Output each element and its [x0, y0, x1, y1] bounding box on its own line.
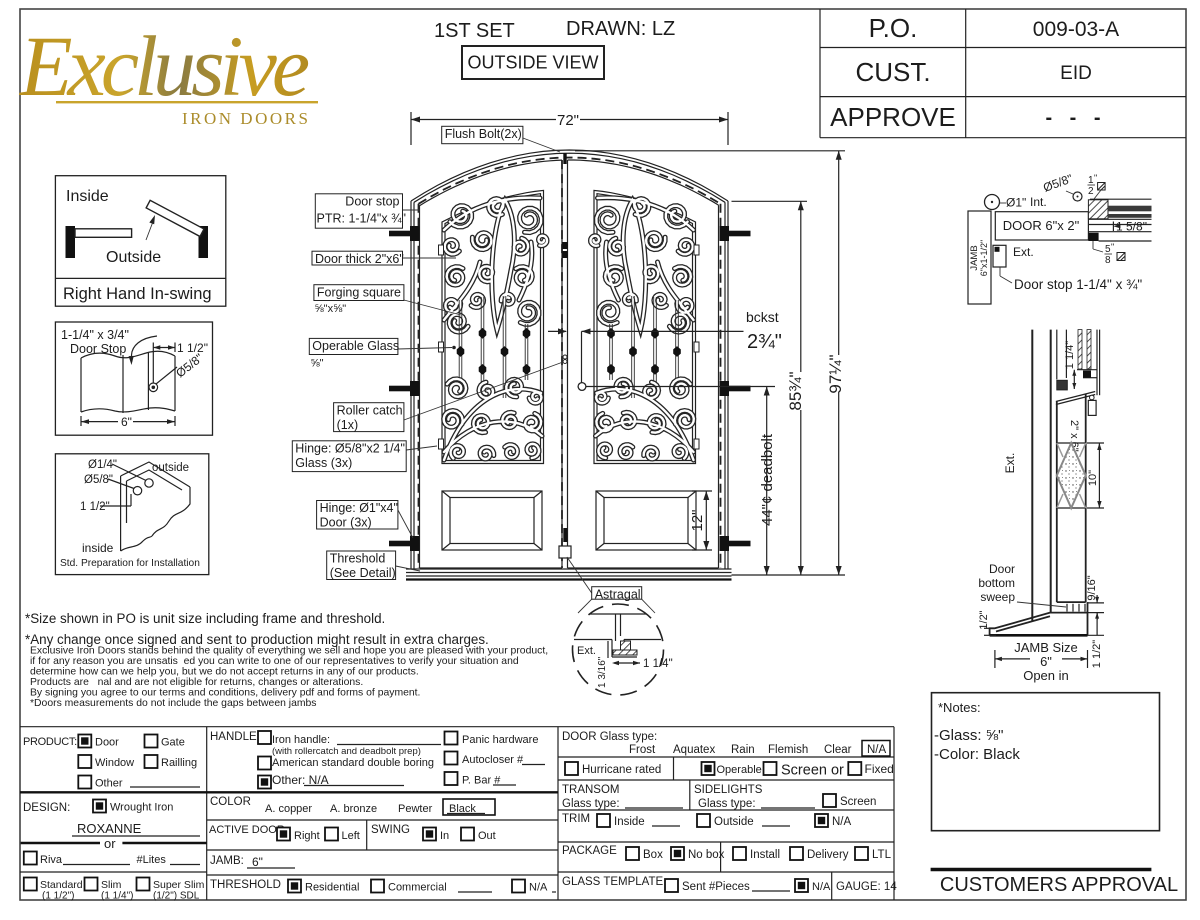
svg-text:In: In — [440, 830, 449, 842]
svg-text:JAMB:: JAMB: — [210, 855, 244, 867]
svg-text:Panic hardware: Panic hardware — [462, 734, 538, 746]
svg-text:(1x): (1x) — [337, 418, 359, 432]
svg-text:10": 10" — [1087, 470, 1099, 486]
svg-text:DESIGN:: DESIGN: — [23, 802, 70, 814]
svg-text:(with rollercatch and deadbolt: (with rollercatch and deadbolt prep) — [272, 746, 421, 757]
svg-text:N/A: N/A — [867, 744, 887, 756]
svg-text:2: 2 — [1088, 186, 1094, 197]
svg-text:(1 1/2"): (1 1/2") — [42, 891, 74, 902]
svg-text:CUSTOMERS APPROVAL: CUSTOMERS APPROVAL — [940, 874, 1178, 896]
svg-text:A. copper: A. copper — [265, 803, 312, 815]
svg-text:Glass (3x): Glass (3x) — [295, 456, 352, 470]
svg-text:Exclusive: Exclusive — [18, 18, 310, 114]
svg-text:TRIM: TRIM — [562, 813, 590, 825]
svg-text:9/16": 9/16" — [1086, 575, 1098, 600]
svg-text:Pewter: Pewter — [398, 803, 433, 815]
svg-text:Glass type:: Glass type: — [698, 798, 756, 810]
svg-text:Operable Glass: Operable Glass — [312, 339, 399, 353]
svg-text:Glass type:: Glass type: — [562, 798, 620, 810]
svg-text:if for any reason you are unsa: if for any reason you are unsatis ed you… — [30, 656, 519, 667]
svg-text:*Size shown in PO is unit size: *Size shown in PO is unit size including… — [25, 611, 385, 626]
svg-text:Ø5/8": Ø5/8" — [84, 474, 113, 486]
svg-text:Door: Door — [989, 562, 1015, 576]
svg-text:Railling: Railling — [161, 757, 197, 769]
svg-text:Int.: Int. — [1030, 195, 1047, 209]
svg-text:1ST SET: 1ST SET — [434, 20, 515, 42]
svg-text:(1/2") SDL: (1/2") SDL — [153, 891, 200, 902]
svg-text:Wrought Iron: Wrought Iron — [110, 802, 173, 814]
svg-text:Clear: Clear — [824, 744, 852, 756]
svg-text:American standard double borin: American standard double boring — [272, 757, 434, 769]
svg-text:Open in: Open in — [1023, 668, 1069, 683]
svg-text:EID: EID — [1060, 63, 1092, 84]
svg-text:JAMB Size: JAMB Size — [1014, 640, 1078, 655]
svg-text:Ext.: Ext. — [1003, 453, 1017, 474]
svg-text:Residential: Residential — [305, 882, 359, 894]
svg-text:Ext.: Ext. — [577, 645, 596, 657]
svg-text:Hinge: Ø1"x4": Hinge: Ø1"x4" — [320, 501, 398, 515]
svg-text:⅝": ⅝" — [311, 358, 324, 370]
svg-text:Other: Other — [95, 778, 123, 790]
svg-text:COLOR: COLOR — [210, 796, 251, 808]
svg-text:bottom: bottom — [978, 576, 1015, 590]
svg-text:sweep: sweep — [980, 590, 1015, 604]
svg-text:GLASS TEMPLATE: GLASS TEMPLATE — [562, 876, 664, 888]
svg-text:*Doors measurements do not inc: *Doors measurements do not include the g… — [30, 698, 316, 709]
svg-text:Right Hand In-swing: Right Hand In-swing — [63, 285, 212, 303]
svg-text:PRODUCT:: PRODUCT: — [23, 736, 77, 748]
svg-text:Screen or: Screen or — [781, 763, 844, 779]
svg-text:TRANSOM: TRANSOM — [562, 784, 620, 796]
svg-text:or: or — [104, 836, 116, 851]
svg-text:6": 6" — [252, 855, 263, 869]
svg-text:Riva: Riva — [40, 854, 63, 866]
svg-text:(1 1/4"): (1 1/4") — [101, 891, 133, 902]
svg-text:N/A: N/A — [812, 881, 831, 893]
svg-text:No box: No box — [688, 849, 725, 861]
svg-text:8: 8 — [1105, 255, 1111, 266]
svg-text:N/A: N/A — [529, 882, 548, 894]
svg-text:1 1/4": 1 1/4" — [1064, 341, 1076, 369]
svg-text:inside: inside — [82, 541, 114, 555]
svg-text:Inside: Inside — [66, 188, 109, 205]
svg-text:ROXANNE: ROXANNE — [77, 821, 142, 836]
svg-text:Door (3x): Door (3x) — [320, 516, 372, 530]
svg-text:72": 72" — [557, 112, 579, 129]
svg-text:Box: Box — [643, 849, 663, 861]
svg-text:Door thick 2"x6": Door thick 2"x6" — [315, 252, 404, 266]
svg-text:APPROVE: APPROVE — [830, 102, 956, 132]
svg-text:THRESHOLD: THRESHOLD — [210, 879, 281, 891]
svg-text:Roller catch: Roller catch — [337, 403, 403, 417]
svg-text:Astragal: Astragal — [595, 587, 641, 601]
svg-text:Door Stop: Door Stop — [70, 342, 126, 356]
svg-text:1 3/16": 1 3/16" — [597, 656, 608, 688]
svg-text:Slim: Slim — [101, 879, 122, 891]
svg-text:-Glass: ⅝": -Glass: ⅝" — [934, 727, 1004, 744]
svg-text:SWING: SWING — [371, 824, 410, 836]
svg-text:44"¢ deadbolt: 44"¢ deadbolt — [759, 433, 776, 526]
svg-text:Right: Right — [294, 830, 320, 842]
svg-text:HANDLE: HANDLE — [210, 731, 257, 743]
svg-text:GAUGE: 14: GAUGE: 14 — [836, 881, 897, 893]
svg-text:PACKAGE: PACKAGE — [562, 845, 617, 857]
svg-text:(See Detail): (See Detail) — [330, 566, 396, 580]
svg-text:Exclusive Iron Doors stands be: Exclusive Iron Doors stands behind the q… — [30, 646, 548, 657]
svg-text:outside: outside — [152, 462, 189, 474]
svg-text:By signing you agree to our te: By signing you agree to our terms and co… — [30, 688, 420, 699]
svg-text:PTR: 1-1/4"x ¾": PTR: 1-1/4"x ¾" — [317, 212, 406, 226]
svg-text:Ø1/4": Ø1/4" — [88, 459, 117, 471]
svg-text:Door stop 1-1/4" x ¾": Door stop 1-1/4" x ¾" — [1014, 277, 1142, 292]
svg-text:Super Slim: Super Slim — [153, 879, 205, 891]
svg-text:LTL: LTL — [872, 849, 892, 861]
svg-text:#Lites: #Lites — [137, 854, 167, 866]
svg-text:Rain: Rain — [731, 744, 755, 756]
svg-text:Outside: Outside — [714, 816, 754, 828]
svg-text:Inside: Inside — [614, 816, 645, 828]
svg-text:009-03-A: 009-03-A — [1033, 18, 1119, 41]
svg-text:Hurricane rated: Hurricane rated — [582, 764, 661, 776]
svg-text:Std. Preparation for Installat: Std. Preparation for Installation — [60, 558, 200, 569]
svg-text:Aquatex: Aquatex — [673, 744, 715, 756]
svg-text:1-1/4" x 3/4": 1-1/4" x 3/4" — [61, 328, 129, 342]
svg-text:Standard: Standard — [40, 879, 83, 891]
svg-text:- - -: - - - — [1045, 107, 1106, 129]
svg-text:Threshold: Threshold — [330, 552, 386, 566]
svg-text:Products are nal and are not: Products are nal and are not eligible fo… — [30, 677, 363, 688]
svg-text:CUST.: CUST. — [855, 57, 930, 87]
svg-text:OUTSIDE VIEW: OUTSIDE VIEW — [467, 53, 598, 73]
svg-text:Ø1": Ø1" — [1006, 196, 1026, 210]
svg-text:DOOR Glass type:: DOOR Glass type: — [562, 731, 657, 743]
svg-text:⅝"x⅝": ⅝"x⅝" — [315, 303, 347, 315]
svg-text:determine how can we help you,: determine how can we help you, but we do… — [30, 667, 419, 678]
svg-text:": " — [1094, 173, 1097, 183]
svg-text:1 1/2": 1 1/2" — [80, 501, 110, 513]
svg-text:6": 6" — [1040, 654, 1052, 669]
svg-text:Iron handle:: Iron handle: — [272, 734, 330, 746]
svg-text:1 1/2": 1 1/2" — [177, 341, 208, 355]
svg-text:1 5/8": 1 5/8" — [1116, 220, 1147, 234]
svg-text:1 1/2": 1 1/2" — [1091, 640, 1103, 668]
svg-text:Commercial: Commercial — [388, 882, 447, 894]
svg-text:Window: Window — [95, 757, 134, 769]
svg-text:Fixed: Fixed — [865, 762, 894, 776]
svg-text:Outside: Outside — [106, 249, 161, 266]
svg-text:Autocloser #: Autocloser # — [462, 754, 524, 766]
svg-text:Forging square: Forging square — [317, 285, 401, 299]
svg-text:Operable: Operable — [717, 764, 762, 776]
svg-text:Out: Out — [478, 830, 496, 842]
svg-text:Hinge: Ø5/8"x2 1/4": Hinge: Ø5/8"x2 1/4" — [295, 441, 405, 455]
svg-text:Ext.: Ext. — [1013, 245, 1034, 259]
svg-text:DOOR 6"x 2": DOOR 6"x 2" — [1003, 218, 1080, 233]
svg-text:Flush Bolt(2x): Flush Bolt(2x) — [445, 127, 522, 141]
svg-text:97¼": 97¼" — [826, 354, 845, 393]
svg-text:2¾": 2¾" — [747, 331, 782, 353]
svg-text:Door stop: Door stop — [345, 194, 399, 208]
svg-text:N/A: N/A — [832, 816, 852, 828]
svg-text:Left: Left — [342, 830, 360, 842]
svg-text:1/2": 1/2" — [978, 610, 990, 629]
svg-text:12": 12" — [689, 509, 706, 531]
svg-text:1 1/4": 1 1/4" — [643, 658, 673, 670]
svg-text:P.O.: P.O. — [869, 13, 918, 43]
svg-text:SIDELIGHTS: SIDELIGHTS — [694, 784, 763, 796]
svg-text:85¾": 85¾" — [786, 371, 805, 410]
svg-text:Frost: Frost — [629, 744, 656, 756]
svg-text:Screen: Screen — [840, 796, 876, 808]
svg-text:DRAWN: LZ: DRAWN: LZ — [566, 18, 675, 40]
svg-text:": " — [1111, 242, 1114, 252]
svg-text:*Notes:: *Notes: — [938, 700, 981, 715]
svg-text:A. bronze: A. bronze — [330, 803, 377, 815]
svg-text:ACTIVE DOOR: ACTIVE DOOR — [209, 824, 285, 836]
svg-text:bckst: bckst — [746, 309, 779, 325]
svg-text:Sent #Pieces: Sent #Pieces — [682, 881, 750, 893]
svg-text:6"x1-1/2": 6"x1-1/2" — [979, 240, 989, 276]
svg-text:Gate: Gate — [161, 737, 185, 749]
svg-text:6": 6" — [121, 415, 132, 429]
svg-text:Door: Door — [95, 737, 119, 749]
svg-text:Flemish: Flemish — [768, 744, 808, 756]
svg-text:Install: Install — [750, 849, 780, 861]
svg-text:Ø5/8": Ø5/8" — [1041, 171, 1074, 195]
svg-text:Delivery: Delivery — [807, 849, 849, 861]
svg-text:IRON DOORS: IRON DOORS — [182, 109, 310, 128]
svg-text:-Color: Black: -Color: Black — [934, 746, 1020, 763]
